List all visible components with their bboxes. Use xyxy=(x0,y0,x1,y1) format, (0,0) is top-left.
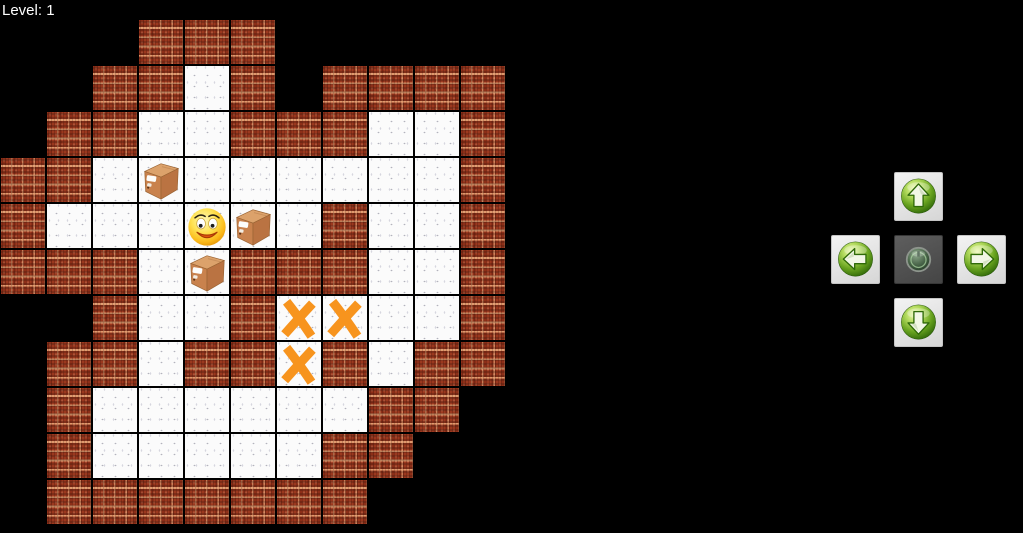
floor-tile xyxy=(92,433,138,479)
floor-tile xyxy=(138,295,184,341)
floor-tile xyxy=(138,387,184,433)
crate-icon xyxy=(139,158,183,202)
wall-tile xyxy=(0,157,46,203)
floor-tile xyxy=(184,387,230,433)
floor-tile xyxy=(322,387,368,433)
empty-space xyxy=(368,19,414,65)
floor-tile xyxy=(368,111,414,157)
empty-space xyxy=(276,19,322,65)
empty-space xyxy=(414,479,460,525)
reset-button[interactable] xyxy=(894,235,943,284)
player-cell xyxy=(184,203,230,249)
target-x-icon xyxy=(277,342,321,386)
floor-tile xyxy=(230,433,276,479)
wall-tile xyxy=(46,479,92,525)
wall-tile xyxy=(230,249,276,295)
empty-space xyxy=(0,341,46,387)
wall-tile xyxy=(230,479,276,525)
wall-tile xyxy=(322,249,368,295)
empty-space xyxy=(460,387,506,433)
floor-tile xyxy=(368,295,414,341)
wall-tile xyxy=(230,111,276,157)
wall-tile xyxy=(276,479,322,525)
wall-tile xyxy=(230,19,276,65)
wall-tile xyxy=(92,341,138,387)
wall-tile xyxy=(92,249,138,295)
sokoban-board xyxy=(0,19,506,525)
move-down-button[interactable] xyxy=(894,298,943,347)
wall-tile xyxy=(184,479,230,525)
empty-space xyxy=(0,433,46,479)
floor-tile xyxy=(184,111,230,157)
wall-tile xyxy=(138,479,184,525)
level-label: Level: 1 xyxy=(2,2,55,20)
floor-tile xyxy=(230,157,276,203)
target-x-icon xyxy=(323,296,367,340)
wall-tile xyxy=(460,111,506,157)
wall-tile xyxy=(92,295,138,341)
wall-tile xyxy=(276,111,322,157)
floor-tile xyxy=(368,341,414,387)
floor-tile xyxy=(368,157,414,203)
empty-space xyxy=(0,65,46,111)
arrow-right-icon xyxy=(961,239,1002,280)
empty-space xyxy=(322,19,368,65)
wall-tile xyxy=(322,203,368,249)
wall-tile xyxy=(0,203,46,249)
floor-tile xyxy=(46,203,92,249)
empty-space xyxy=(460,19,506,65)
wall-tile xyxy=(184,341,230,387)
empty-space xyxy=(414,19,460,65)
arrow-down-icon xyxy=(898,302,939,343)
floor-tile xyxy=(138,341,184,387)
wall-tile xyxy=(322,479,368,525)
game-screen: Level: 1 xyxy=(0,0,1023,533)
player-smiley-icon xyxy=(185,204,229,248)
wall-tile xyxy=(322,111,368,157)
wall-tile xyxy=(414,65,460,111)
empty-space xyxy=(460,479,506,525)
wall-tile xyxy=(46,157,92,203)
wall-tile xyxy=(138,19,184,65)
floor-tile xyxy=(230,387,276,433)
target-cell xyxy=(276,341,322,387)
crate-cell xyxy=(138,157,184,203)
wall-tile xyxy=(46,111,92,157)
reset-power-icon xyxy=(898,239,939,280)
floor-tile xyxy=(276,387,322,433)
floor-tile xyxy=(92,157,138,203)
floor-tile xyxy=(414,295,460,341)
empty-space xyxy=(92,19,138,65)
empty-space xyxy=(46,65,92,111)
empty-space xyxy=(0,111,46,157)
floor-tile xyxy=(322,157,368,203)
wall-tile xyxy=(414,341,460,387)
wall-tile xyxy=(46,341,92,387)
wall-tile xyxy=(322,341,368,387)
wall-tile xyxy=(230,65,276,111)
wall-tile xyxy=(230,295,276,341)
floor-tile xyxy=(184,65,230,111)
empty-space xyxy=(0,295,46,341)
crate-icon xyxy=(231,204,275,248)
crate-cell xyxy=(230,203,276,249)
floor-tile xyxy=(414,111,460,157)
move-up-button[interactable] xyxy=(894,172,943,221)
empty-space xyxy=(368,479,414,525)
floor-tile xyxy=(276,433,322,479)
wall-tile xyxy=(368,433,414,479)
arrow-left-icon xyxy=(835,239,876,280)
wall-tile xyxy=(460,341,506,387)
empty-space xyxy=(0,387,46,433)
empty-space xyxy=(46,295,92,341)
wall-tile xyxy=(276,249,322,295)
wall-tile xyxy=(92,479,138,525)
wall-tile xyxy=(92,111,138,157)
target-cell xyxy=(276,295,322,341)
floor-tile xyxy=(184,433,230,479)
wall-tile xyxy=(0,249,46,295)
floor-tile xyxy=(368,249,414,295)
wall-tile xyxy=(460,203,506,249)
floor-tile xyxy=(414,157,460,203)
floor-tile xyxy=(138,433,184,479)
wall-tile xyxy=(184,19,230,65)
wall-tile xyxy=(92,65,138,111)
floor-tile xyxy=(184,157,230,203)
wall-tile xyxy=(414,387,460,433)
wall-tile xyxy=(322,65,368,111)
crate-icon xyxy=(185,250,229,294)
wall-tile xyxy=(460,157,506,203)
floor-tile xyxy=(276,203,322,249)
wall-tile xyxy=(46,249,92,295)
floor-tile xyxy=(184,295,230,341)
crate-cell xyxy=(184,249,230,295)
wall-tile xyxy=(368,387,414,433)
floor-tile xyxy=(414,203,460,249)
floor-tile xyxy=(138,203,184,249)
floor-tile xyxy=(368,203,414,249)
floor-tile xyxy=(414,249,460,295)
move-left-button[interactable] xyxy=(831,235,880,284)
empty-space xyxy=(0,479,46,525)
wall-tile xyxy=(460,65,506,111)
empty-space xyxy=(46,19,92,65)
floor-tile xyxy=(138,249,184,295)
target-cell xyxy=(322,295,368,341)
wall-tile xyxy=(230,341,276,387)
wall-tile xyxy=(322,433,368,479)
floor-tile xyxy=(92,387,138,433)
floor-tile xyxy=(92,203,138,249)
wall-tile xyxy=(46,433,92,479)
wall-tile xyxy=(460,295,506,341)
empty-space xyxy=(0,19,46,65)
wall-tile xyxy=(46,387,92,433)
wall-tile xyxy=(368,65,414,111)
target-x-icon xyxy=(277,296,321,340)
wall-tile xyxy=(138,65,184,111)
empty-space xyxy=(414,433,460,479)
floor-tile xyxy=(138,111,184,157)
floor-tile xyxy=(276,157,322,203)
move-right-button[interactable] xyxy=(957,235,1006,284)
arrow-up-icon xyxy=(898,176,939,217)
empty-space xyxy=(460,433,506,479)
wall-tile xyxy=(460,249,506,295)
empty-space xyxy=(276,65,322,111)
